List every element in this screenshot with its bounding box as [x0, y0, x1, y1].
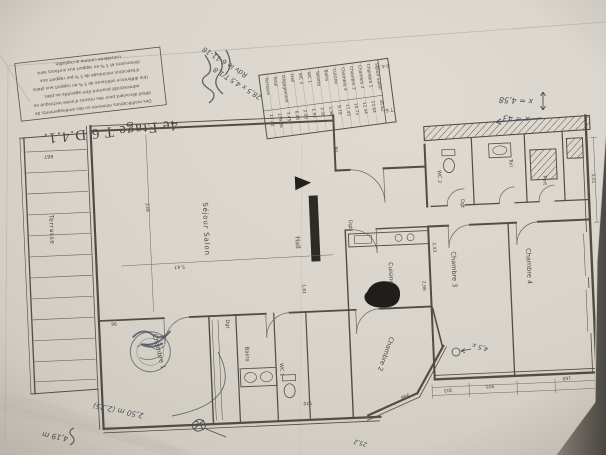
photo-of-floor-plan: 4e Etage T 6 D.4.1. Des modifications mi…	[0, 0, 606, 455]
photo-edges	[0, 0, 606, 455]
floor-plan-photo: 4e Etage T 6 D.4.1. Des modifications mi…	[0, 0, 606, 455]
